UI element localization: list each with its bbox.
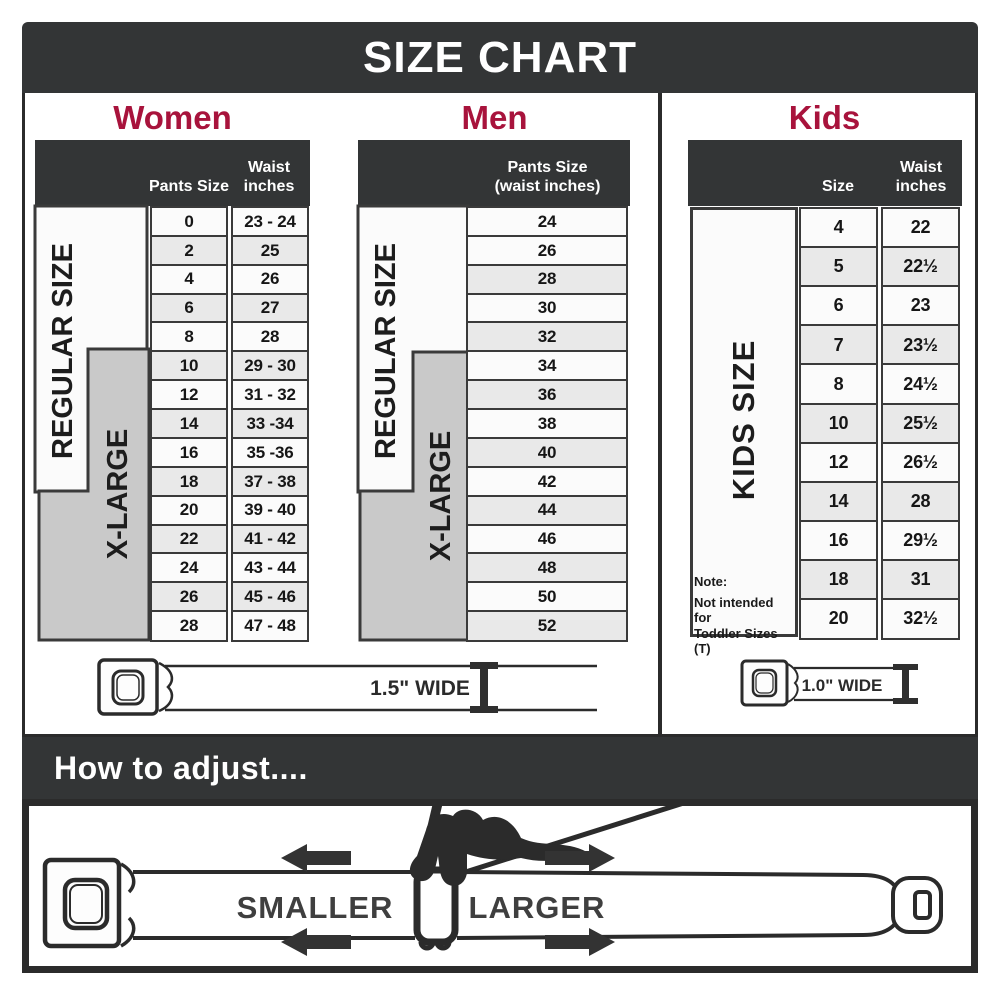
- adult-belt-illustration: 1.5" WIDE: [85, 650, 605, 725]
- table-cell: 22: [881, 207, 960, 249]
- men-table-header: Pants Size (waist inches): [358, 140, 630, 206]
- table-cell: 10: [150, 350, 228, 381]
- men-size-bands: REGULAR SIZE X-LARGE: [356, 203, 476, 643]
- table-cell: 52: [466, 610, 628, 641]
- table-cell: 29½: [881, 520, 960, 562]
- table-cell: 12: [150, 379, 228, 410]
- width-gauge-icon: [893, 664, 918, 704]
- table-cell: 39 - 40: [231, 495, 309, 526]
- kids-note: Note: Not intended for Toddler Sizes (T): [694, 574, 794, 657]
- women-regular-label: REGULAR SIZE: [47, 243, 79, 459]
- table-cell: 32½: [881, 598, 960, 640]
- table-cell: 45 - 46: [231, 581, 309, 612]
- table-cell: 27: [231, 293, 309, 324]
- table-cell: 35 -36: [231, 437, 309, 468]
- width-gauge-icon: [470, 662, 498, 713]
- table-cell: 20: [799, 598, 878, 640]
- seatbelt-buckle-icon: [742, 661, 798, 705]
- table-cell: 40: [466, 437, 628, 468]
- table-cell: 16: [150, 437, 228, 468]
- table-cell: 26: [466, 235, 628, 266]
- table-cell: 41 - 42: [231, 524, 309, 555]
- women-table-header: Pants Size Waist inches: [35, 140, 310, 206]
- section-divider: [658, 93, 662, 737]
- size-chart-infographic: SIZE CHART Women Men Kids Pants Size Wai…: [0, 0, 1000, 1000]
- kids-note-title: Note:: [694, 574, 794, 590]
- adjust-illustration: SMALLER LARGER: [29, 806, 971, 966]
- men-xlarge-label: X-LARGE: [425, 431, 457, 562]
- table-cell: 26: [150, 581, 228, 612]
- table-cell: 23: [881, 285, 960, 327]
- table-cell: 4: [150, 264, 228, 295]
- smaller-label: SMALLER: [237, 890, 394, 925]
- kids-col-waist: Waist inches: [878, 158, 964, 196]
- table-cell: 32: [466, 321, 628, 352]
- table-cell: 24: [466, 206, 628, 237]
- table-cell: 28: [150, 610, 228, 641]
- table-cell: 29 - 30: [231, 350, 309, 381]
- title-banner: SIZE CHART: [22, 22, 978, 93]
- table-cell: 10: [799, 403, 878, 445]
- kids-band-label: KIDS SIZE: [724, 260, 764, 580]
- kids-col-size: Size: [795, 177, 881, 196]
- table-cell: 28: [231, 321, 309, 352]
- table-cell: 28: [466, 264, 628, 295]
- women-col-waist: Waist inches: [228, 158, 310, 196]
- seatbelt-buckle-icon: [99, 660, 172, 714]
- table-cell: 31: [881, 559, 960, 601]
- table-cell: 6: [150, 293, 228, 324]
- table-cell: 26: [231, 264, 309, 295]
- table-cell: 38: [466, 408, 628, 439]
- table-cell: 24½: [881, 363, 960, 405]
- table-cell: 34: [466, 350, 628, 381]
- men-regular-label: REGULAR SIZE: [370, 243, 402, 459]
- men-col-pants-size: Pants Size (waist inches): [455, 158, 640, 196]
- table-cell: 28: [881, 481, 960, 523]
- adult-belt-width-label: 1.5" WIDE: [370, 677, 470, 700]
- page-title: SIZE CHART: [363, 33, 637, 83]
- table-cell: 25½: [881, 403, 960, 445]
- table-cell: 6: [799, 285, 878, 327]
- table-cell: 25: [231, 235, 309, 266]
- kids-belt-illustration: 1.0" WIDE: [732, 655, 927, 713]
- table-cell: 4: [799, 207, 878, 249]
- table-cell: 20: [150, 495, 228, 526]
- table-cell: 48: [466, 552, 628, 583]
- table-cell: 22½: [881, 246, 960, 288]
- table-cell: 44: [466, 495, 628, 526]
- table-cell: 18: [150, 466, 228, 497]
- table-cell: 22: [150, 524, 228, 555]
- kids-heading: Kids: [712, 99, 937, 137]
- table-cell: 33 -34: [231, 408, 309, 439]
- how-to-adjust-title: How to adjust....: [54, 750, 308, 787]
- table-cell: 31 - 32: [231, 379, 309, 410]
- kids-note-line1: Not intended for: [694, 595, 794, 626]
- table-cell: 50: [466, 581, 628, 612]
- table-cell: 23½: [881, 324, 960, 366]
- larger-label: LARGER: [469, 890, 606, 925]
- table-cell: 37 - 38: [231, 466, 309, 497]
- table-cell: 26½: [881, 442, 960, 484]
- table-cell: 36: [466, 379, 628, 410]
- women-col-pants-size: Pants Size: [148, 177, 230, 196]
- table-cell: 8: [799, 363, 878, 405]
- how-to-adjust-banner: How to adjust....: [22, 737, 978, 799]
- seatbelt-buckle-icon: [45, 860, 134, 946]
- table-cell: 47 - 48: [231, 610, 309, 641]
- men-heading: Men: [382, 99, 607, 137]
- table-cell: 16: [799, 520, 878, 562]
- table-cell: 46: [466, 524, 628, 555]
- strap-tail-latch-icon: [893, 878, 941, 932]
- kids-table-header: Size Waist inches: [688, 140, 962, 206]
- table-cell: 14: [799, 481, 878, 523]
- women-heading: Women: [60, 99, 285, 137]
- kids-note-line2: Toddler Sizes (T): [694, 626, 794, 657]
- table-cell: 0: [150, 206, 228, 237]
- table-cell: 18: [799, 559, 878, 601]
- table-cell: 2: [150, 235, 228, 266]
- table-cell: 23 - 24: [231, 206, 309, 237]
- table-cell: 12: [799, 442, 878, 484]
- kids-belt-width-label: 1.0" WIDE: [802, 676, 883, 695]
- table-cell: 43 - 44: [231, 552, 309, 583]
- table-cell: 7: [799, 324, 878, 366]
- table-cell: 42: [466, 466, 628, 497]
- table-cell: 30: [466, 293, 628, 324]
- table-cell: 14: [150, 408, 228, 439]
- table-cell: 5: [799, 246, 878, 288]
- table-cell: 8: [150, 321, 228, 352]
- women-xlarge-label: X-LARGE: [102, 429, 134, 560]
- women-size-bands: REGULAR SIZE X-LARGE: [33, 203, 153, 643]
- table-cell: 24: [150, 552, 228, 583]
